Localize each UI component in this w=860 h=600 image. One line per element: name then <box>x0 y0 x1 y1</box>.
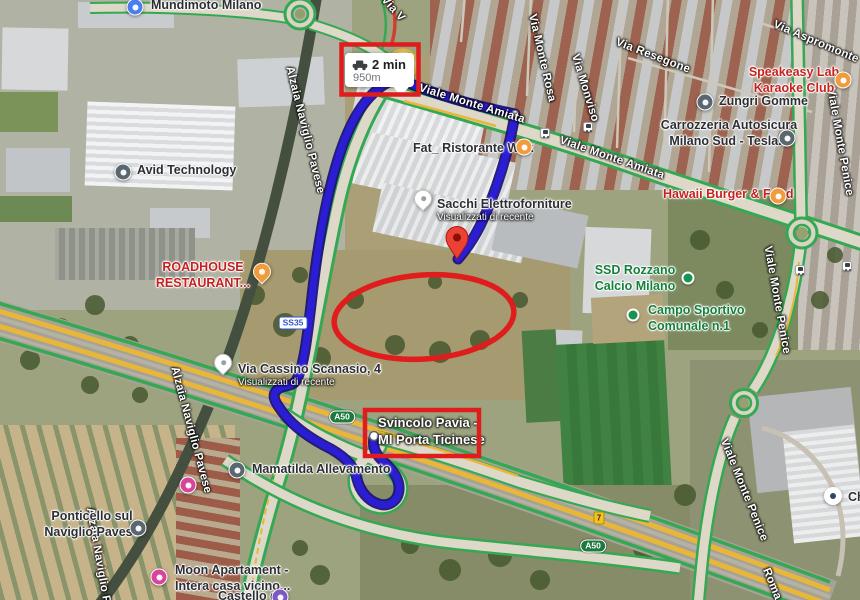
poi-label-line: Avid Technology <box>137 162 236 178</box>
poi-label-line: Sacchi Elettroforniture <box>437 196 572 212</box>
poi-sacchi-elettroforniture[interactable]: Sacchi ElettrofornitureVisualizzati di r… <box>437 196 572 225</box>
poi-label-line: SSD Rozzano <box>595 262 676 278</box>
road-shield-exit-7: 7 <box>594 512 605 525</box>
poi-label-line: Via Cassino Scanasio, 4 <box>238 361 381 377</box>
moon-apartament-pin[interactable] <box>151 569 168 586</box>
car-icon <box>352 58 368 71</box>
poi-speakeasy-lab[interactable]: Speakeasy LabKaraoke Club <box>749 64 839 96</box>
bus-stop-1-pin[interactable] <box>540 128 550 138</box>
poi-via-cassino-scanasio[interactable]: Via Cassino Scanasio, 4Visualizzati di r… <box>238 361 381 390</box>
poi-ch-partial[interactable]: Ch <box>848 489 860 505</box>
poi-label-line: Mundimoto Milano <box>151 0 261 13</box>
poi-roadhouse-restaurant[interactable]: ROADHOUSERESTAURANT... <box>156 259 250 291</box>
street-label: Viale Monte Penice <box>762 245 793 355</box>
sacchi-elettroforniture-pin[interactable] <box>410 186 435 211</box>
road-shield-a50-east: A50 <box>580 540 606 553</box>
poi-ponticello-naviglio[interactable]: Ponticello sulNaviglio Pavese <box>44 508 139 540</box>
roadhouse-restaurant-pin[interactable] <box>249 259 274 284</box>
bus-stop-4-pin[interactable] <box>842 261 852 271</box>
ch-partial-pin[interactable] <box>824 487 842 505</box>
poi-avid-technology[interactable]: Avid Technology <box>137 162 236 178</box>
poi-svincolo-pavia-exit[interactable]: Svincolo Pavia -MI Porta Ticinese <box>378 415 485 448</box>
fat-ristorante-wok-pin[interactable] <box>516 139 533 156</box>
poi-label-line: Mamatilda Allevamento <box>252 461 390 477</box>
poi-label-line: Calcio Milano <box>595 278 676 294</box>
poi-label-line: Moon Apartament - <box>175 562 290 578</box>
bus-stop-2-pin[interactable] <box>583 122 593 132</box>
poi-label-line: ROADHOUSE <box>156 259 250 275</box>
poi-label-line: Carrozzeria Autosicura <box>661 117 797 133</box>
street-label: Via V <box>379 0 408 24</box>
poi-ssd-rozzano[interactable]: SSD RozzanoCalcio Milano <box>595 262 676 294</box>
ponticello-naviglio-pin[interactable] <box>130 520 147 537</box>
street-label: Viale Monte Penice <box>825 87 856 197</box>
poi-label-line: Ponticello sul <box>44 508 139 524</box>
poi-label-line: Comunale n.1 <box>648 318 745 334</box>
poi-sublabel: Visualizzati di recente <box>437 212 572 225</box>
poi-campo-sportivo[interactable]: Campo SportivoComunale n.1 <box>648 302 745 334</box>
castello-di-pin[interactable] <box>272 589 289 600</box>
street-label: Alzaia Naviglio Pavese <box>168 365 213 494</box>
map-labels-layer: Via VViale Monte AmiataViale Monte Amiat… <box>0 0 860 600</box>
street-label: Via Aspromonte <box>771 19 860 66</box>
road-shield-ss35: SS35 <box>279 317 308 330</box>
carrozzeria-autosicura-pin[interactable] <box>779 130 796 147</box>
street-label: Roma <box>760 566 784 600</box>
zungri-gomme-pin[interactable] <box>697 94 714 111</box>
route-duration-badge[interactable]: 2 min 950m <box>345 53 414 87</box>
poi-mundimoto-milano[interactable]: Mundimoto Milano <box>151 0 261 13</box>
road-shield-a50-west: A50 <box>329 411 355 424</box>
street-label: Via Monte Rosa <box>526 13 558 103</box>
poi-label-line: Zungri Gomme <box>719 93 808 109</box>
poi-label-line: RESTAURANT... <box>156 275 250 291</box>
poi-mamatilda-allevamento[interactable]: Mamatilda Allevamento <box>252 461 390 477</box>
mundimoto-milano-pin[interactable] <box>127 0 144 16</box>
poi-label-line: Speakeasy Lab <box>749 64 839 80</box>
route-distance: 950m <box>353 72 406 84</box>
street-label: Viale Monte Penice <box>718 437 770 543</box>
lodging-pin[interactable] <box>180 477 197 494</box>
poi-label-line: Svincolo Pavia - <box>378 415 485 432</box>
poi-label-line: Ch <box>848 489 860 505</box>
street-label: Viale Monte Amiata <box>558 134 666 181</box>
poi-label-line: MI Porta Ticinese <box>378 432 485 449</box>
poi-label-line: Milano Sud - Tesla... <box>661 133 797 149</box>
campo-sportivo-pin[interactable] <box>627 309 640 322</box>
poi-sublabel: Visualizzati di recente <box>238 377 381 390</box>
route-duration: 2 min <box>372 57 406 72</box>
via-cassino-scanasio-pin[interactable] <box>210 350 235 375</box>
poi-label-line: Campo Sportivo <box>648 302 745 318</box>
hawaii-burger-pin[interactable] <box>770 188 787 205</box>
street-label: Viale Monte Amiata <box>418 82 527 126</box>
satellite-map[interactable]: Via VViale Monte AmiataViale Monte Amiat… <box>0 0 860 600</box>
bus-stop-3-pin[interactable] <box>795 265 805 275</box>
poi-label-line: Naviglio Pavese <box>44 524 139 540</box>
speakeasy-lab-pin[interactable] <box>835 72 852 89</box>
street-label: Via Resegone <box>614 36 692 75</box>
mamatilda-allevamento-pin[interactable] <box>229 462 246 479</box>
street-label: Alzaia Naviglio Pavese <box>283 65 326 195</box>
poi-carrozzeria-autosicura[interactable]: Carrozzeria AutosicuraMilano Sud - Tesla… <box>661 117 797 149</box>
ssd-rozzano-pin[interactable] <box>682 272 695 285</box>
avid-technology-pin[interactable] <box>115 164 132 181</box>
poi-zungri-gomme[interactable]: Zungri Gomme <box>719 93 808 109</box>
street-label: Via Monviso <box>569 53 601 124</box>
